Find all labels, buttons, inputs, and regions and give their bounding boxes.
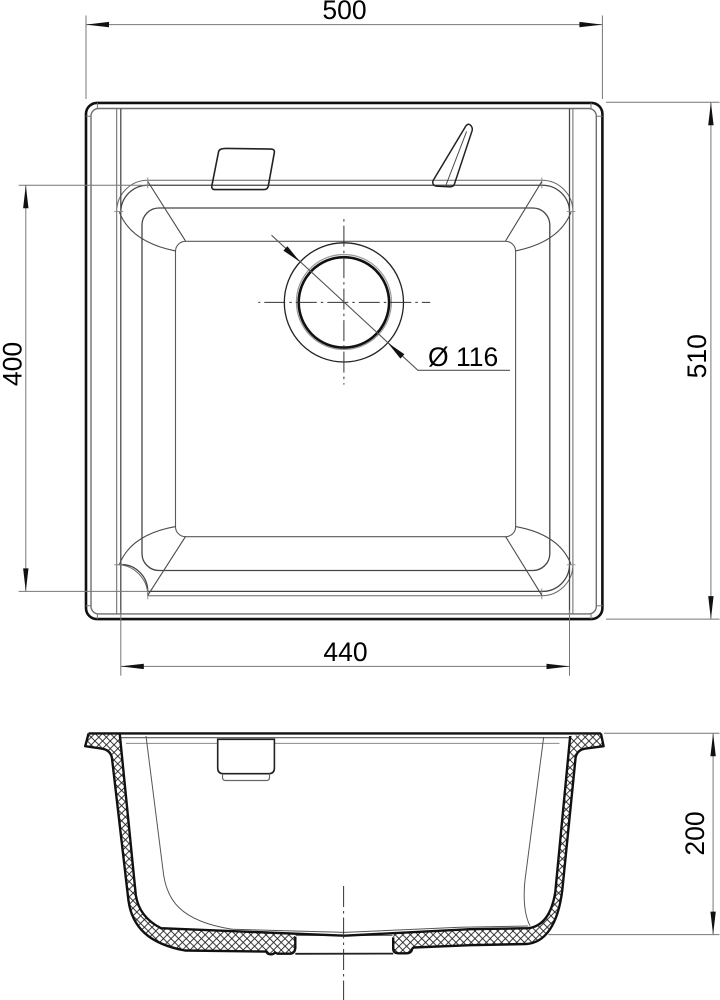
- svg-text:400: 400: [0, 342, 28, 386]
- svg-text:440: 440: [323, 637, 367, 667]
- svg-text:500: 500: [322, 0, 366, 25]
- svg-text:510: 510: [682, 334, 712, 378]
- svg-text:200: 200: [680, 811, 710, 855]
- svg-text:Ø 116: Ø 116: [428, 342, 498, 372]
